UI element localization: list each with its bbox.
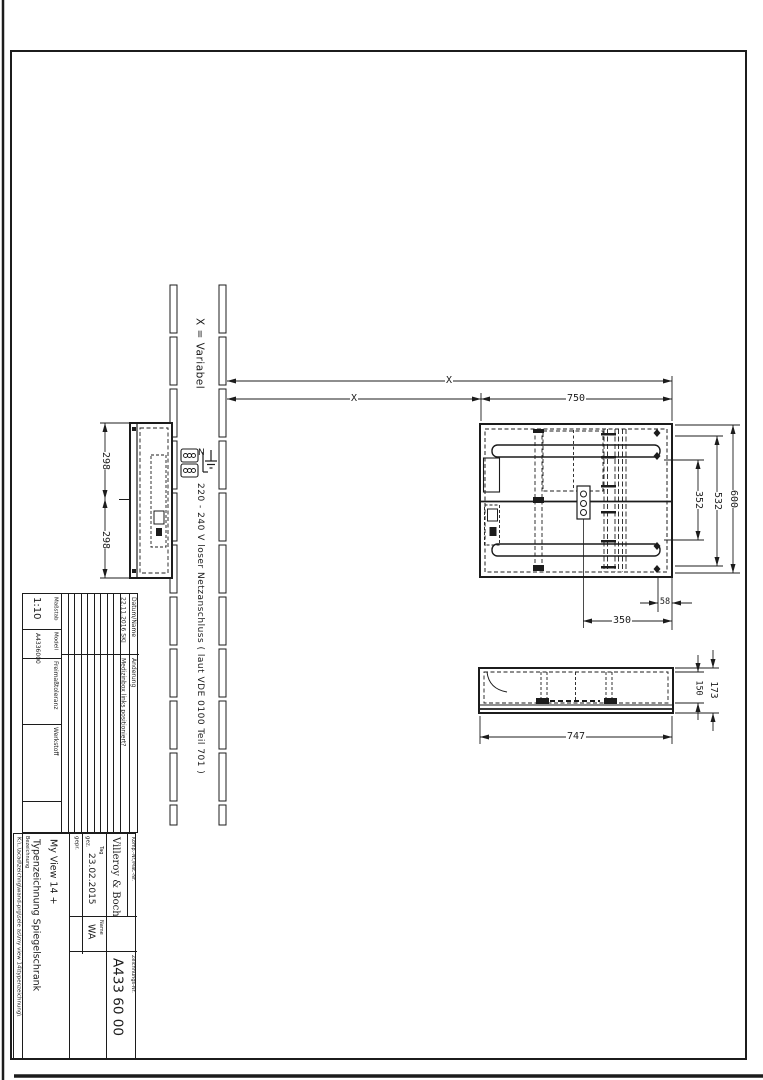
dim-298-top: 298 <box>99 452 111 470</box>
dim-350: 350 <box>612 616 632 626</box>
front-view <box>480 424 672 628</box>
company-name: Villeroy & Boch <box>110 837 120 917</box>
aenderung-label: Änderung <box>130 658 136 687</box>
dim-x-top: X <box>445 376 453 386</box>
title-block-upper: Maßstab 1:10 Modell A4336000 Freimaßtole… <box>22 593 138 833</box>
dim-532: 532 <box>711 492 723 510</box>
technical-drawing-page: X = Variabel 220 - 240 V loser Netzansch… <box>0 0 763 1080</box>
komp-label: Komp.-Nr./Mat.-Nr. <box>129 837 134 881</box>
dim-352: 352 <box>692 491 704 509</box>
power-note: 220 - 240 V loser Netzanschluss ( laut V… <box>195 483 204 774</box>
freimass-label: Freimaßtoleranz <box>52 661 58 710</box>
bezeichnung-line2: My View 14 + <box>48 839 58 904</box>
datum-name-label: Datum/Name <box>130 597 136 637</box>
revision-text: Medizinbox links positioniert? <box>120 658 126 747</box>
dim-750: 750 <box>566 394 586 404</box>
earth-ground-icon <box>203 450 217 472</box>
file-path: K:\..\acad\zeichng\wand-prg\sele as\my v… <box>15 837 21 1016</box>
dim-600: 600 <box>727 490 739 508</box>
gez-label: gez. <box>84 836 90 848</box>
gepr-label: gepr. <box>73 836 79 850</box>
dim-x-bottom: X <box>350 394 358 404</box>
dim-58: 58 <box>659 598 671 607</box>
bezeichnung-label: Bezeichnung <box>24 836 29 868</box>
dim-298-bottom: 298 <box>99 531 111 549</box>
dim-173: 173 <box>707 681 719 698</box>
masstab-label: Maßstab <box>52 597 58 620</box>
title-block-main: K:\..\acad\zeichng\wand-prg\sele as\my v… <box>13 833 136 1059</box>
werkstoff-label: Werkstoff <box>52 727 58 756</box>
dim-747: 747 <box>566 732 586 742</box>
revision-date: 22.11.2016 SKJ <box>120 597 126 643</box>
dim-150: 150 <box>693 680 704 695</box>
socket-plate <box>577 486 590 519</box>
modell-label: Modell <box>52 632 58 650</box>
side-view <box>119 423 172 578</box>
neutral-label: N <box>198 449 205 458</box>
bottom-view <box>479 668 673 713</box>
masstab-value: 1:10 <box>31 597 41 619</box>
bezeichnung-line1: Typenzeichnung Spiegelschrank <box>31 839 41 991</box>
tag-label: Tag <box>98 846 103 854</box>
modell-value: A4336000 <box>34 633 40 664</box>
zeichnung-value: A433 60 00 <box>110 958 124 1036</box>
name-value: WA <box>86 924 96 939</box>
variable-note: X = Variabel <box>194 318 205 389</box>
name-label: Name <box>98 920 103 935</box>
tag-value: 23.02.2015 <box>86 853 95 905</box>
zeichnung-label: Zeichnungs-Nr. <box>130 955 135 993</box>
